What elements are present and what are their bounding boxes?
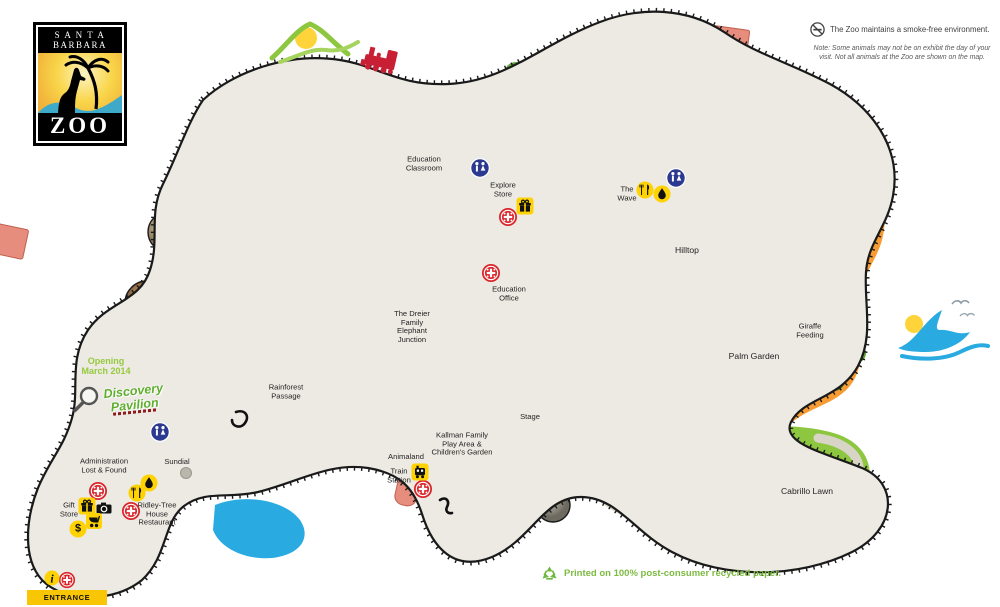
label-animaland: Animaland bbox=[388, 453, 424, 462]
entrance-label: ENTRANCE bbox=[27, 590, 107, 605]
label-giraffe-feeding: Giraffe Feeding bbox=[796, 323, 823, 340]
no-smoking-icon bbox=[810, 22, 825, 37]
magnifier-icon bbox=[71, 385, 101, 415]
label-elephant-junction: The Dreier Family Elephant Junction bbox=[394, 310, 430, 344]
label-gift-store: Gift Store bbox=[60, 502, 78, 519]
gift-shop-icon bbox=[516, 197, 534, 215]
restroom-icon bbox=[470, 158, 490, 178]
logo-city-text: S A N T A BARBARA bbox=[38, 27, 122, 53]
logo-zoo-text: ZOO bbox=[38, 113, 122, 141]
first-aid-icon bbox=[122, 502, 141, 521]
sundial-marker bbox=[180, 467, 192, 479]
first-aid-icon bbox=[482, 264, 501, 283]
first-aid-icon bbox=[414, 480, 433, 499]
drink-icon bbox=[140, 474, 158, 492]
animals-disclaimer-note: Note: Some animals may not be on exhibit… bbox=[806, 44, 998, 63]
stroller-icon bbox=[86, 513, 103, 530]
label-palm-garden: Palm Garden bbox=[729, 352, 780, 362]
label-education-classroom: Education Classroom bbox=[406, 156, 442, 173]
recycled-paper-text: Printed on 100% post-consumer recycled p… bbox=[564, 568, 781, 579]
logo-palm-giraffe-art bbox=[38, 53, 122, 113]
smoke-free-text: The Zoo maintains a smoke-free environme… bbox=[830, 25, 989, 34]
mountains-decoration bbox=[272, 24, 358, 62]
recycled-paper-note: Printed on 100% post-consumer recycled p… bbox=[541, 565, 781, 582]
smoke-free-note: The Zoo maintains a smoke-free environme… bbox=[810, 22, 989, 37]
restroom-icon bbox=[150, 422, 170, 442]
information-icon: i bbox=[45, 571, 60, 586]
train-station-icon bbox=[411, 463, 429, 481]
zoo-map-page: S A N T A BARBARA ZOO The Zoo maintains bbox=[0, 0, 1000, 607]
label-the-wave: The Wave bbox=[617, 186, 636, 203]
label-sundial: Sundial bbox=[164, 458, 189, 467]
label-education-office: Education Office bbox=[492, 286, 526, 303]
label-opening-march-2014: Opening March 2014 bbox=[81, 356, 130, 376]
label-explore-store: Explore Store bbox=[490, 182, 516, 199]
label-hilltop: Hilltop bbox=[675, 246, 699, 256]
first-aid-icon bbox=[59, 572, 76, 589]
label-administration: Administration Lost & Found bbox=[80, 458, 128, 475]
giraffe-silhouette bbox=[58, 67, 85, 112]
label-rainforest-passage: Rainforest Passage bbox=[269, 384, 304, 401]
drink-icon bbox=[653, 185, 671, 203]
first-aid-icon bbox=[499, 208, 518, 227]
logo-artwork bbox=[38, 53, 122, 113]
food-icon bbox=[636, 181, 654, 199]
label-stage: Stage bbox=[520, 413, 540, 422]
label-kallman-play-area: Kallman Family Play Area & Children's Ga… bbox=[432, 431, 493, 457]
dollar-icon: $ bbox=[70, 521, 87, 538]
ocean-wave-decoration bbox=[898, 301, 988, 359]
label-ridley-tree-restaurant: Ridley-Tree House Restaurant bbox=[138, 501, 177, 527]
label-cabrillo-lawn: Cabrillo Lawn bbox=[781, 487, 833, 497]
recycle-icon bbox=[541, 565, 558, 582]
santa-barbara-zoo-logo: S A N T A BARBARA ZOO bbox=[33, 22, 127, 146]
label-train-station: Train Station bbox=[387, 468, 411, 485]
